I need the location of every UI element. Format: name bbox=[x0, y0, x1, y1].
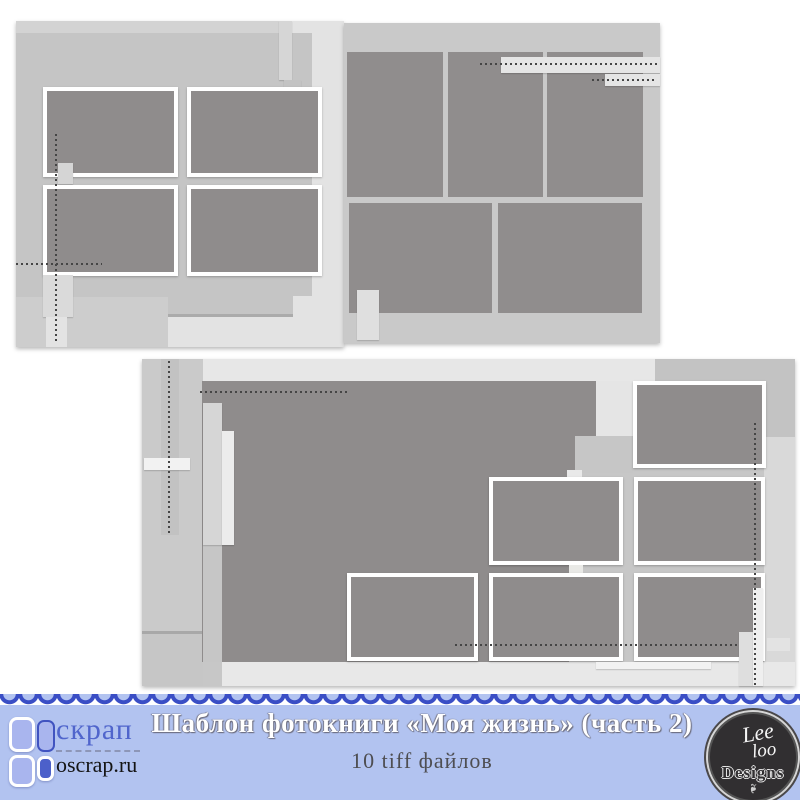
paper-layer bbox=[16, 297, 168, 347]
leeloo-designs-logo: Lee loo Designs ❧ bbox=[706, 710, 800, 800]
logo-square-icon bbox=[9, 755, 35, 787]
photo-placeholder bbox=[187, 185, 322, 276]
product-subtitle: 10 tiff файлов bbox=[138, 748, 706, 774]
stitch-line bbox=[592, 79, 657, 81]
ribbon-tab bbox=[569, 565, 583, 573]
photo-placeholder bbox=[489, 477, 623, 565]
stitch-line bbox=[200, 391, 347, 393]
photo-placeholder bbox=[187, 87, 322, 177]
ribbon-tab bbox=[58, 163, 73, 184]
paper-layer bbox=[203, 359, 655, 381]
ribbon-tab bbox=[739, 632, 753, 686]
template-page-top-right bbox=[344, 23, 660, 343]
photo-placeholder bbox=[498, 203, 642, 313]
paper-layer bbox=[16, 21, 292, 33]
ribbon-tab bbox=[596, 662, 711, 669]
banner-text-block: Шаблон фотокниги «Моя жизнь» (часть 2) 1… bbox=[138, 708, 706, 774]
stitch-line bbox=[455, 644, 738, 646]
paper-layer bbox=[203, 545, 222, 662]
stitch-line bbox=[754, 423, 756, 686]
template-page-top-left bbox=[16, 21, 344, 347]
ribbon-tab bbox=[43, 275, 73, 317]
site-url: oscrap.ru bbox=[56, 754, 137, 776]
ribbon-tab bbox=[357, 290, 379, 340]
paper-layer bbox=[596, 381, 633, 436]
stitch-line bbox=[55, 134, 57, 342]
logo-designs-text: Designs bbox=[708, 763, 798, 783]
product-title: Шаблон фотокниги «Моя жизнь» (часть 2) bbox=[138, 708, 706, 739]
paper-layer bbox=[575, 436, 633, 473]
ribbon-tab bbox=[144, 458, 190, 470]
paper-layer bbox=[142, 634, 203, 686]
ribbon-tab bbox=[501, 57, 660, 73]
template-page-bottom bbox=[142, 359, 795, 686]
logo-square-icon bbox=[37, 720, 55, 752]
photo-placeholder bbox=[347, 52, 443, 197]
ribbon-tab bbox=[222, 431, 234, 545]
paper-layer bbox=[161, 359, 179, 535]
ribbon-tab bbox=[767, 638, 790, 651]
photo-placeholder bbox=[489, 573, 623, 661]
scallop-border bbox=[0, 694, 800, 705]
logo-square-icon bbox=[9, 717, 35, 752]
photo-placeholder bbox=[633, 381, 766, 468]
stitch-line bbox=[16, 263, 102, 265]
ribbon-tab bbox=[203, 403, 222, 545]
photo-placeholder bbox=[634, 477, 765, 565]
banner: скрап oscrap.ru Шаблон фотокниги «Моя жи… bbox=[0, 694, 800, 800]
brand-name: скрап bbox=[56, 715, 133, 745]
logo-square-icon bbox=[37, 756, 54, 781]
stitch-line bbox=[480, 63, 657, 65]
stitch-line bbox=[168, 361, 170, 535]
ribbon-tab bbox=[279, 21, 292, 80]
photo-placeholder bbox=[448, 52, 543, 197]
logo-script-text: loo bbox=[751, 738, 778, 763]
leaf-icon: ❧ bbox=[743, 783, 760, 795]
photo-block-large bbox=[202, 381, 596, 473]
photo-placeholder bbox=[347, 573, 478, 661]
product-preview-image: { "banner": { "title": "Шаблон фотокниги… bbox=[0, 0, 800, 800]
